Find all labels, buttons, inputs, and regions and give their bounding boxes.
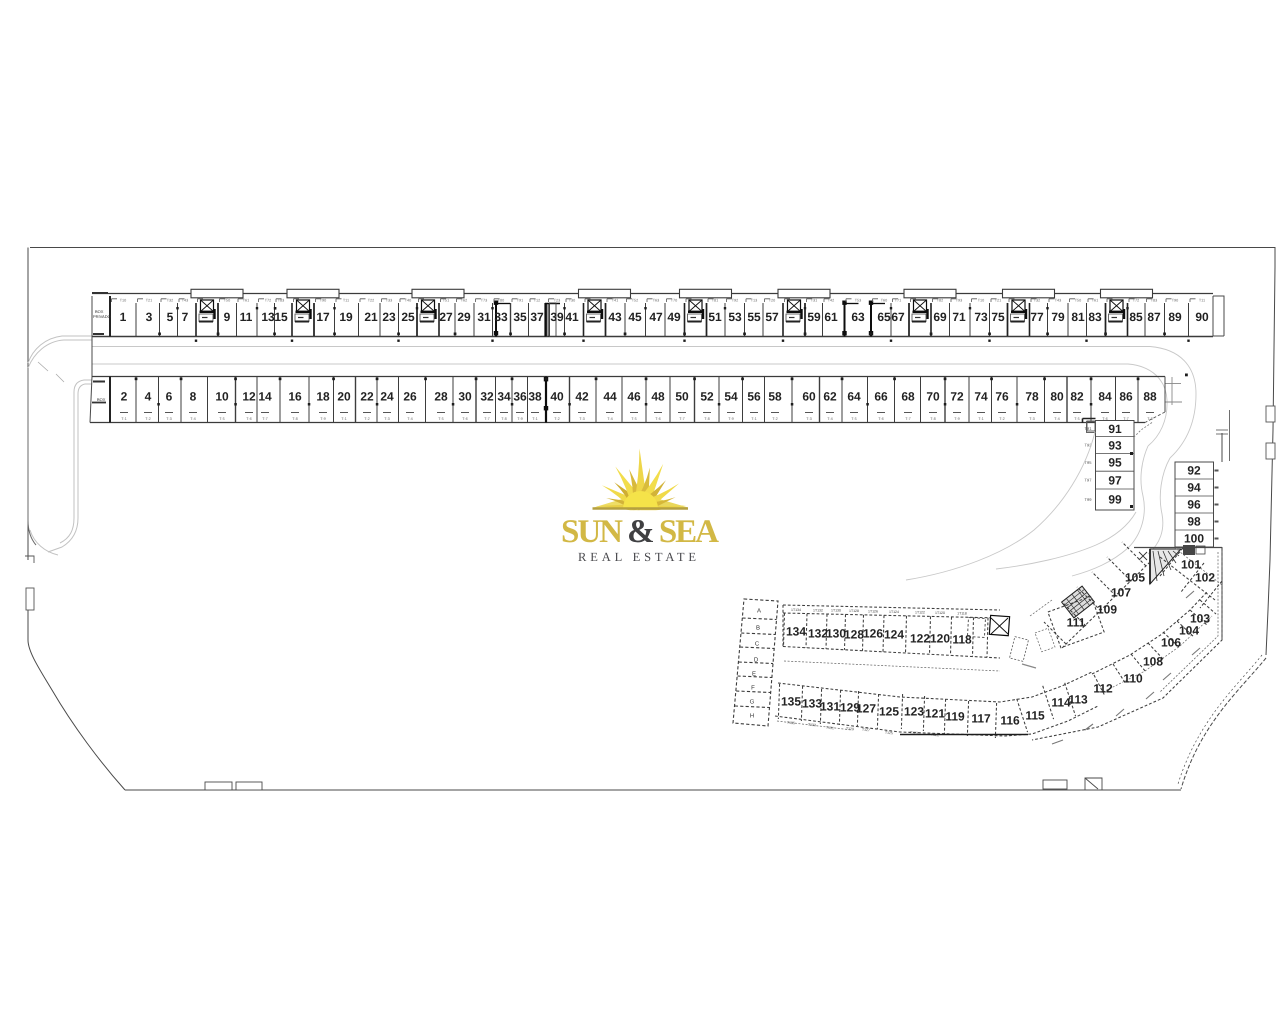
svg-text:T52: T52 <box>632 299 639 303</box>
svg-text:19: 19 <box>339 310 353 324</box>
svg-text:101: 101 <box>1181 558 1201 572</box>
svg-text:88: 88 <box>1143 390 1157 404</box>
svg-text:T50: T50 <box>224 299 231 303</box>
svg-text:47: 47 <box>649 310 663 324</box>
svg-text:22: 22 <box>360 390 374 404</box>
svg-text:124: 124 <box>884 628 904 642</box>
svg-text:BOX: BOX <box>97 397 106 402</box>
svg-text:63: 63 <box>851 310 865 324</box>
svg-text:33: 33 <box>494 310 508 324</box>
svg-text:T121: T121 <box>931 733 939 738</box>
svg-text:T90: T90 <box>320 299 327 303</box>
svg-text:T11: T11 <box>1199 299 1205 303</box>
svg-text:T-1: T-1 <box>121 417 127 421</box>
svg-text:T40: T40 <box>405 299 412 303</box>
svg-text:1T120: 1T120 <box>935 611 945 615</box>
svg-text:T129: T129 <box>846 727 854 732</box>
svg-text:76: 76 <box>995 390 1009 404</box>
svg-text:T20: T20 <box>769 299 776 303</box>
svg-text:T93: T93 <box>956 299 963 303</box>
svg-text:100: 100 <box>1184 532 1204 546</box>
svg-text:13: 13 <box>261 310 275 324</box>
svg-text:9: 9 <box>224 310 231 324</box>
svg-text:T43: T43 <box>1055 299 1062 303</box>
svg-text:T-2: T-2 <box>364 417 370 421</box>
svg-text:49: 49 <box>667 310 681 324</box>
svg-text:T-5: T-5 <box>219 417 225 421</box>
svg-text:T21: T21 <box>995 299 1002 303</box>
svg-text:80: 80 <box>1050 390 1064 404</box>
svg-text:118: 118 <box>952 633 972 647</box>
svg-text:T50: T50 <box>1075 299 1082 303</box>
svg-text:T127: T127 <box>862 728 870 733</box>
svg-text:T-8: T-8 <box>501 417 507 421</box>
svg-text:T-3: T-3 <box>806 417 812 421</box>
svg-text:82: 82 <box>1070 390 1084 404</box>
svg-text:T-4: T-4 <box>1054 417 1060 421</box>
svg-text:T-4: T-4 <box>407 417 413 421</box>
svg-text:42: 42 <box>575 390 589 404</box>
svg-text:T91: T91 <box>1085 426 1093 431</box>
svg-text:T31: T31 <box>811 299 818 303</box>
svg-text:120: 120 <box>930 632 950 646</box>
svg-text:T92: T92 <box>732 299 739 303</box>
svg-text:T60: T60 <box>881 299 888 303</box>
svg-text:66: 66 <box>874 390 888 404</box>
svg-text:T-1: T-1 <box>751 417 757 421</box>
svg-text:T32: T32 <box>1034 299 1041 303</box>
svg-text:T-3: T-3 <box>384 417 390 421</box>
svg-text:T32: T32 <box>167 299 174 303</box>
svg-text:5: 5 <box>167 310 174 324</box>
svg-text:135: 135 <box>781 695 801 709</box>
svg-text:T71: T71 <box>895 299 902 303</box>
svg-text:60: 60 <box>802 390 816 404</box>
svg-text:T41: T41 <box>612 299 619 303</box>
svg-text:35: 35 <box>513 310 527 324</box>
svg-text:68: 68 <box>901 390 915 404</box>
svg-text:T72: T72 <box>1133 299 1140 303</box>
svg-text:T-8: T-8 <box>292 417 298 421</box>
svg-text:D: D <box>754 657 759 664</box>
svg-text:T-4: T-4 <box>827 417 833 421</box>
svg-text:41: 41 <box>565 310 579 324</box>
svg-text:91: 91 <box>1108 422 1122 436</box>
svg-text:T43: T43 <box>182 299 189 303</box>
svg-text:T-2: T-2 <box>999 417 1005 421</box>
svg-text:85: 85 <box>1129 310 1143 324</box>
svg-text:T-5: T-5 <box>631 417 637 421</box>
svg-text:104: 104 <box>1179 624 1199 638</box>
svg-text:T-8: T-8 <box>1147 417 1153 421</box>
svg-text:21: 21 <box>364 310 378 324</box>
svg-text:T97: T97 <box>1085 478 1093 483</box>
svg-text:24: 24 <box>380 390 394 404</box>
svg-text:87: 87 <box>1147 310 1161 324</box>
svg-text:26: 26 <box>403 390 417 404</box>
svg-text:T33: T33 <box>386 299 393 303</box>
svg-text:97: 97 <box>1108 473 1122 487</box>
svg-text:43: 43 <box>608 310 622 324</box>
svg-text:T62: T62 <box>461 299 468 303</box>
svg-text:T23: T23 <box>554 299 561 303</box>
svg-text:75: 75 <box>991 310 1005 324</box>
svg-text:62: 62 <box>823 390 837 404</box>
svg-text:1T124: 1T124 <box>889 610 899 614</box>
svg-text:T10: T10 <box>120 299 127 303</box>
svg-text:T-7: T-7 <box>679 417 685 421</box>
svg-text:48: 48 <box>651 390 665 404</box>
svg-text:61: 61 <box>824 310 838 324</box>
svg-text:123: 123 <box>904 705 924 719</box>
svg-text:84: 84 <box>1098 390 1112 404</box>
svg-text:54: 54 <box>724 390 738 404</box>
svg-text:17: 17 <box>316 310 330 324</box>
svg-text:44: 44 <box>603 390 617 404</box>
svg-text:27: 27 <box>439 310 453 324</box>
svg-text:78: 78 <box>1025 390 1039 404</box>
svg-text:T-9: T-9 <box>954 417 960 421</box>
svg-text:92: 92 <box>1187 464 1201 478</box>
svg-text:70: 70 <box>926 390 940 404</box>
svg-text:40: 40 <box>550 390 564 404</box>
svg-text:T53: T53 <box>855 299 862 303</box>
svg-text:T-3: T-3 <box>1029 417 1035 421</box>
svg-text:119: 119 <box>945 710 965 724</box>
svg-text:126: 126 <box>863 627 883 641</box>
svg-text:T123: T123 <box>910 731 918 736</box>
svg-text:25: 25 <box>401 310 415 324</box>
svg-text:T72: T72 <box>265 299 272 303</box>
svg-text:T-2: T-2 <box>145 417 151 421</box>
svg-text:T21: T21 <box>146 299 153 303</box>
svg-text:1: 1 <box>120 310 127 324</box>
svg-text:95: 95 <box>1108 456 1122 470</box>
svg-text:T-4: T-4 <box>607 417 613 421</box>
svg-text:112: 112 <box>1093 682 1113 696</box>
svg-text:50: 50 <box>675 390 689 404</box>
svg-text:T63: T63 <box>653 299 660 303</box>
svg-text:109: 109 <box>1097 603 1117 617</box>
svg-text:134: 134 <box>786 625 806 639</box>
svg-text:H: H <box>750 713 754 720</box>
svg-text:T11: T11 <box>343 299 349 303</box>
svg-text:28: 28 <box>434 390 448 404</box>
svg-text:29: 29 <box>457 310 471 324</box>
svg-text:T22: T22 <box>368 299 375 303</box>
svg-text:T61: T61 <box>1092 299 1099 303</box>
svg-text:T-7: T-7 <box>484 417 490 421</box>
svg-text:B: B <box>756 625 760 632</box>
svg-text:T80: T80 <box>498 299 505 303</box>
svg-text:45: 45 <box>628 310 642 324</box>
svg-text:125: 125 <box>879 705 899 719</box>
svg-text:67: 67 <box>891 310 905 324</box>
svg-text:1T128: 1T128 <box>849 609 859 613</box>
svg-text:96: 96 <box>1187 498 1201 512</box>
svg-text:F: F <box>751 685 755 692</box>
svg-text:110: 110 <box>1123 672 1143 686</box>
svg-text:37: 37 <box>530 310 544 324</box>
svg-text:T-9: T-9 <box>320 417 326 421</box>
svg-text:65: 65 <box>877 310 891 324</box>
svg-text:36: 36 <box>513 390 527 404</box>
svg-text:83: 83 <box>1088 310 1102 324</box>
svg-text:T-9: T-9 <box>517 417 523 421</box>
svg-text:T73: T73 <box>481 299 488 303</box>
svg-text:T10: T10 <box>978 299 985 303</box>
svg-text:55: 55 <box>747 310 761 324</box>
svg-text:1T132: 1T132 <box>813 608 823 612</box>
svg-text:T81: T81 <box>712 299 719 303</box>
svg-text:115: 115 <box>1025 709 1045 723</box>
svg-text:86: 86 <box>1119 390 1133 404</box>
svg-text:T-9: T-9 <box>728 417 734 421</box>
svg-text:1T134: 1T134 <box>791 608 801 612</box>
svg-text:121: 121 <box>925 707 945 721</box>
svg-text:T-5: T-5 <box>851 417 857 421</box>
svg-text:6: 6 <box>166 390 173 404</box>
svg-text:T90: T90 <box>1172 299 1179 303</box>
svg-text:116: 116 <box>1000 714 1020 728</box>
svg-text:T-4: T-4 <box>190 417 196 421</box>
svg-text:G: G <box>750 699 755 706</box>
svg-text:20: 20 <box>337 390 351 404</box>
svg-text:128: 128 <box>844 628 864 642</box>
svg-text:11: 11 <box>240 310 253 324</box>
svg-text:74: 74 <box>974 390 988 404</box>
svg-text:REAL ESTATE: REAL ESTATE <box>578 550 702 564</box>
svg-text:T-1: T-1 <box>978 417 984 421</box>
svg-text:SUN & SEA: SUN & SEA <box>561 514 719 550</box>
svg-text:T-5: T-5 <box>1074 417 1080 421</box>
svg-text:T-3: T-3 <box>579 417 585 421</box>
svg-text:12: 12 <box>242 390 256 404</box>
svg-text:77: 77 <box>1030 310 1044 324</box>
svg-text:34: 34 <box>497 390 511 404</box>
svg-text:59: 59 <box>807 310 821 324</box>
svg-text:C: C <box>755 641 760 648</box>
svg-text:T-5: T-5 <box>438 417 444 421</box>
svg-text:T-2: T-2 <box>772 417 778 421</box>
svg-text:T133: T133 <box>808 723 816 728</box>
svg-text:107: 107 <box>1111 586 1131 600</box>
svg-text:106: 106 <box>1161 636 1181 650</box>
svg-text:T-7: T-7 <box>262 417 268 421</box>
svg-text:79: 79 <box>1051 310 1065 324</box>
svg-text:46: 46 <box>627 390 641 404</box>
svg-text:32: 32 <box>480 390 494 404</box>
svg-text:30: 30 <box>458 390 472 404</box>
svg-text:23: 23 <box>382 310 396 324</box>
svg-text:T-6: T-6 <box>878 417 884 421</box>
svg-text:16: 16 <box>288 390 302 404</box>
svg-text:31: 31 <box>477 310 491 324</box>
svg-text:T42: T42 <box>828 299 835 303</box>
svg-text:T-6: T-6 <box>246 417 252 421</box>
svg-text:T131: T131 <box>826 726 834 731</box>
svg-text:T13: T13 <box>751 299 758 303</box>
svg-text:8: 8 <box>190 390 197 404</box>
svg-text:T135: T135 <box>787 721 795 726</box>
svg-text:93: 93 <box>1108 438 1122 452</box>
svg-text:2: 2 <box>121 390 128 404</box>
svg-text:T12: T12 <box>534 299 541 303</box>
svg-text:T61: T61 <box>243 299 250 303</box>
svg-text:3: 3 <box>146 310 153 324</box>
svg-text:71: 71 <box>952 310 966 324</box>
svg-text:7: 7 <box>182 310 189 324</box>
svg-text:56: 56 <box>747 390 761 404</box>
svg-text:111: 111 <box>1067 616 1086 630</box>
svg-text:T91: T91 <box>517 299 524 303</box>
svg-text:14: 14 <box>258 390 272 404</box>
svg-text:1T126: 1T126 <box>868 610 878 614</box>
svg-text:T51: T51 <box>443 299 450 303</box>
svg-text:122: 122 <box>910 632 930 646</box>
svg-text:T82: T82 <box>937 299 944 303</box>
svg-text:4: 4 <box>145 390 152 404</box>
svg-text:18: 18 <box>316 390 330 404</box>
svg-text:T99: T99 <box>1085 497 1093 502</box>
svg-text:51: 51 <box>708 310 722 324</box>
svg-text:10: 10 <box>215 390 229 404</box>
svg-text:T70: T70 <box>671 299 678 303</box>
svg-text:113: 113 <box>1068 693 1088 707</box>
svg-text:64: 64 <box>847 390 861 404</box>
svg-text:39: 39 <box>550 310 564 324</box>
svg-text:T83: T83 <box>278 299 285 303</box>
svg-text:1T122: 1T122 <box>915 611 925 615</box>
svg-text:58: 58 <box>768 390 782 404</box>
svg-text:E: E <box>752 671 756 678</box>
svg-text:T-3: T-3 <box>166 417 172 421</box>
svg-text:15: 15 <box>274 310 288 324</box>
svg-text:PRIVADO: PRIVADO <box>93 314 111 319</box>
svg-text:57: 57 <box>765 310 779 324</box>
svg-text:53: 53 <box>728 310 742 324</box>
svg-text:T-2: T-2 <box>554 417 560 421</box>
svg-text:1T130: 1T130 <box>831 609 841 613</box>
svg-text:72: 72 <box>950 390 964 404</box>
svg-text:T95: T95 <box>1085 460 1093 465</box>
svg-text:99: 99 <box>1108 493 1122 507</box>
svg-text:T-1: T-1 <box>532 417 538 421</box>
svg-text:73: 73 <box>974 310 988 324</box>
svg-text:52: 52 <box>700 390 714 404</box>
svg-text:108: 108 <box>1143 655 1163 669</box>
svg-text:81: 81 <box>1071 310 1085 324</box>
svg-text:98: 98 <box>1187 515 1201 529</box>
svg-text:105: 105 <box>1125 571 1145 585</box>
svg-text:38: 38 <box>528 390 542 404</box>
svg-text:T-8: T-8 <box>704 417 710 421</box>
svg-text:1T118: 1T118 <box>957 612 967 616</box>
svg-text:131: 131 <box>820 700 840 714</box>
svg-text:T-6: T-6 <box>462 417 468 421</box>
svg-text:T83: T83 <box>1151 299 1158 303</box>
svg-text:T-1: T-1 <box>341 417 347 421</box>
svg-text:102: 102 <box>1195 571 1215 585</box>
svg-text:117: 117 <box>971 712 991 726</box>
svg-text:90: 90 <box>1195 310 1209 324</box>
svg-text:T-8: T-8 <box>930 417 936 421</box>
svg-text:127: 127 <box>856 702 876 716</box>
svg-text:T30: T30 <box>569 299 576 303</box>
svg-text:T125: T125 <box>885 731 893 736</box>
svg-text:69: 69 <box>933 310 947 324</box>
svg-text:T-7: T-7 <box>905 417 911 421</box>
svg-text:A: A <box>757 608 761 615</box>
svg-text:89: 89 <box>1168 310 1182 324</box>
svg-text:94: 94 <box>1187 481 1201 495</box>
svg-text:T-6: T-6 <box>655 417 661 421</box>
